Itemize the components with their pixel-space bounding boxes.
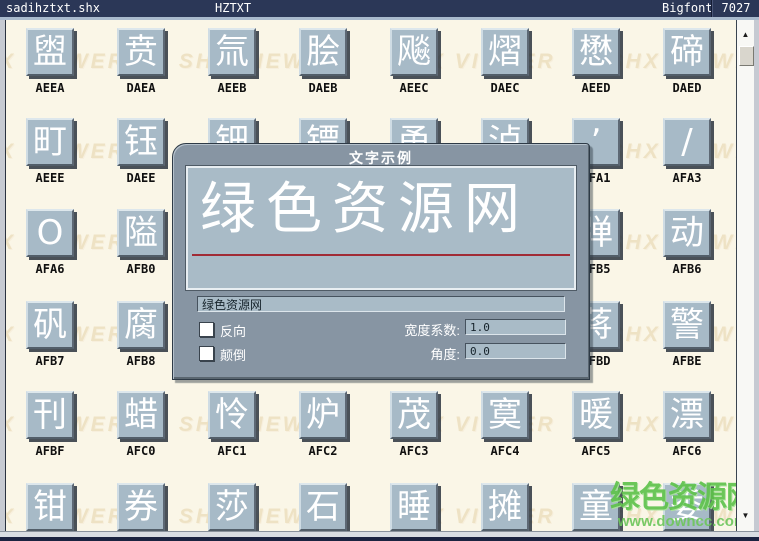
text-preview-panel: 绿色资源网: [186, 166, 576, 290]
glyph-tile[interactable]: 石: [299, 483, 347, 531]
glyph-character: 蜡: [119, 393, 163, 437]
scrollbar-thumb[interactable]: [739, 46, 754, 66]
shx-viewer-watermark: SHX VIEWER SHX VIEWER SHX VIEWER SHX VIE…: [6, 413, 736, 437]
glyph-code-label: DAEC: [460, 81, 550, 95]
scrollbar-up-icon[interactable]: ▲: [737, 28, 754, 42]
window-frame-left: [0, 20, 6, 537]
glyph-character: 怜: [210, 393, 254, 437]
glyph-tile[interactable]: 贲: [117, 28, 165, 76]
glyph-character: 隘: [119, 211, 163, 255]
glyph-code-label: AFA3: [642, 171, 732, 185]
titlebar-font-name: HZTXT: [215, 0, 251, 17]
glyph-character: 刊: [28, 393, 72, 437]
glyph-code-label: AFC4: [460, 444, 550, 458]
reverse-checkbox[interactable]: [199, 322, 214, 337]
glyph-character: 钳: [28, 485, 72, 529]
glyph-tile[interactable]: 盥: [26, 28, 74, 76]
glyph-character: 漂: [665, 393, 709, 437]
glyph-code-label: AFC0: [96, 444, 186, 458]
glyph-code-label: AFC1: [187, 444, 277, 458]
glyph-character: 腐: [119, 303, 163, 347]
glyph-tile[interactable]: 茂: [390, 391, 438, 439]
reverse-checkbox-label: 反向: [220, 321, 246, 340]
glyph-tile[interactable]: 怜: [208, 391, 256, 439]
glyph-character: 暖: [574, 393, 618, 437]
glyph-character: 矾: [28, 303, 72, 347]
glyph-tile[interactable]: 矾: [26, 301, 74, 349]
glyph-character: 懋: [574, 30, 618, 74]
glyph-tile[interactable]: 隘: [117, 209, 165, 257]
glyph-character: 摊: [483, 485, 527, 529]
glyph-code-label: AFBF: [6, 444, 95, 458]
titlebar-glyph-count: 7027: [711, 0, 759, 17]
glyph-tile[interactable]: 碲: [663, 28, 711, 76]
site-watermark: 绿色资源网 www.downcc.com: [610, 483, 755, 530]
dialog-title: 文字示例: [173, 148, 589, 168]
glyph-character: 钰: [119, 120, 163, 164]
glyph-tile[interactable]: 睡: [390, 483, 438, 531]
site-watermark-name: 绿色资源网: [610, 483, 755, 513]
glyph-tile[interactable]: 炉: [299, 391, 347, 439]
titlebar-divider: [0, 17, 759, 20]
vertical-scrollbar[interactable]: ▲ ▼: [736, 20, 754, 531]
scrollbar-down-icon[interactable]: ▼: [737, 509, 754, 523]
glyph-code-label: DAEA: [96, 81, 186, 95]
window-frame-bottom-edge: [0, 537, 759, 541]
glyph-character: 熠: [483, 30, 527, 74]
glyph-code-label: AFB7: [6, 354, 95, 368]
glyph-tile[interactable]: 警: [663, 301, 711, 349]
glyph-tile[interactable]: 刊: [26, 391, 74, 439]
site-watermark-url: www.downcc.com: [610, 513, 755, 530]
text-sample-dialog: 文字示例 绿色资源网 反向 颠倒 宽度系数: 角度:: [172, 143, 590, 380]
glyph-tile[interactable]: 町: [26, 118, 74, 166]
glyph-character: 睡: [392, 485, 436, 529]
glyph-code-label: AEEB: [187, 81, 277, 95]
glyph-tile[interactable]: 券: [117, 483, 165, 531]
glyph-tile[interactable]: 莎: [208, 483, 256, 531]
glyph-character: 寞: [483, 393, 527, 437]
glyph-character: 氚: [210, 30, 254, 74]
glyph-character: 飚: [392, 30, 436, 74]
glyph-tile[interactable]: 钰: [117, 118, 165, 166]
glyph-tile[interactable]: 懋: [572, 28, 620, 76]
glyph-tile[interactable]: 钳: [26, 483, 74, 531]
glyph-tile[interactable]: 蜡: [117, 391, 165, 439]
titlebar-font-type: Bigfont: [662, 0, 713, 17]
angle-label: 角度:: [338, 344, 460, 363]
glyph-code-label: AFC6: [642, 444, 732, 458]
glyph-character: 碲: [665, 30, 709, 74]
glyph-tile[interactable]: 氚: [208, 28, 256, 76]
preview-text: 绿色资源网: [200, 178, 530, 242]
glyph-tile[interactable]: 摊: [481, 483, 529, 531]
titlebar: sadihztxt.shx HZTXT Bigfont 7027: [0, 0, 759, 17]
glyph-code-label: DAEB: [278, 81, 368, 95]
glyph-tile[interactable]: 暖: [572, 391, 620, 439]
glyph-character: 莎: [210, 485, 254, 529]
glyph-tile[interactable]: 飚: [390, 28, 438, 76]
width-factor-label: 宽度系数:: [338, 320, 460, 339]
glyph-code-label: AEEC: [369, 81, 459, 95]
glyph-code-label: AFB6: [642, 262, 732, 276]
glyph-code-label: AEEE: [6, 171, 95, 185]
glyph-code-label: AFC2: [278, 444, 368, 458]
glyph-code-label: AFBE: [642, 354, 732, 368]
glyph-code-label: AFC5: [551, 444, 641, 458]
glyph-character: 盥: [28, 30, 72, 74]
glyph-code-label: DAED: [642, 81, 732, 95]
glyph-character: /: [665, 120, 709, 164]
preview-underline: [192, 254, 570, 256]
glyph-tile[interactable]: 寞: [481, 391, 529, 439]
glyph-character: 町: [28, 120, 72, 164]
glyph-character: 脍: [301, 30, 345, 74]
glyph-code-label: AFC3: [369, 444, 459, 458]
glyph-character: 茂: [392, 393, 436, 437]
glyph-tile[interactable]: O: [26, 209, 74, 257]
glyph-character: 动: [665, 211, 709, 255]
glyph-character: 石: [301, 485, 345, 529]
glyph-code-label: AEEA: [6, 81, 95, 95]
glyph-character: 炉: [301, 393, 345, 437]
glyph-character: 贲: [119, 30, 163, 74]
shx-viewer-watermark: SHX VIEWER SHX VIEWER SHX VIEWER SHX VIE…: [6, 50, 736, 74]
glyph-character: 警: [665, 303, 709, 347]
glyph-tile[interactable]: 脍: [299, 28, 347, 76]
glyph-tile[interactable]: 漂: [663, 391, 711, 439]
glyph-character: O: [28, 211, 72, 255]
glyph-tile[interactable]: 熠: [481, 28, 529, 76]
glyph-tile[interactable]: 腐: [117, 301, 165, 349]
glyph-code-label: AEED: [551, 81, 641, 95]
sample-text-input[interactable]: [197, 296, 565, 312]
glyph-code-label: AFA6: [6, 262, 95, 276]
titlebar-filename: sadihztxt.shx: [6, 0, 100, 17]
angle-input[interactable]: [465, 343, 566, 359]
glyph-character: 券: [119, 485, 163, 529]
width-factor-input[interactable]: [465, 319, 566, 335]
glyph-tile[interactable]: 动: [663, 209, 711, 257]
upside-down-checkbox-label: 颠倒: [220, 345, 246, 364]
glyph-tile[interactable]: /: [663, 118, 711, 166]
upside-down-checkbox[interactable]: [199, 346, 214, 361]
